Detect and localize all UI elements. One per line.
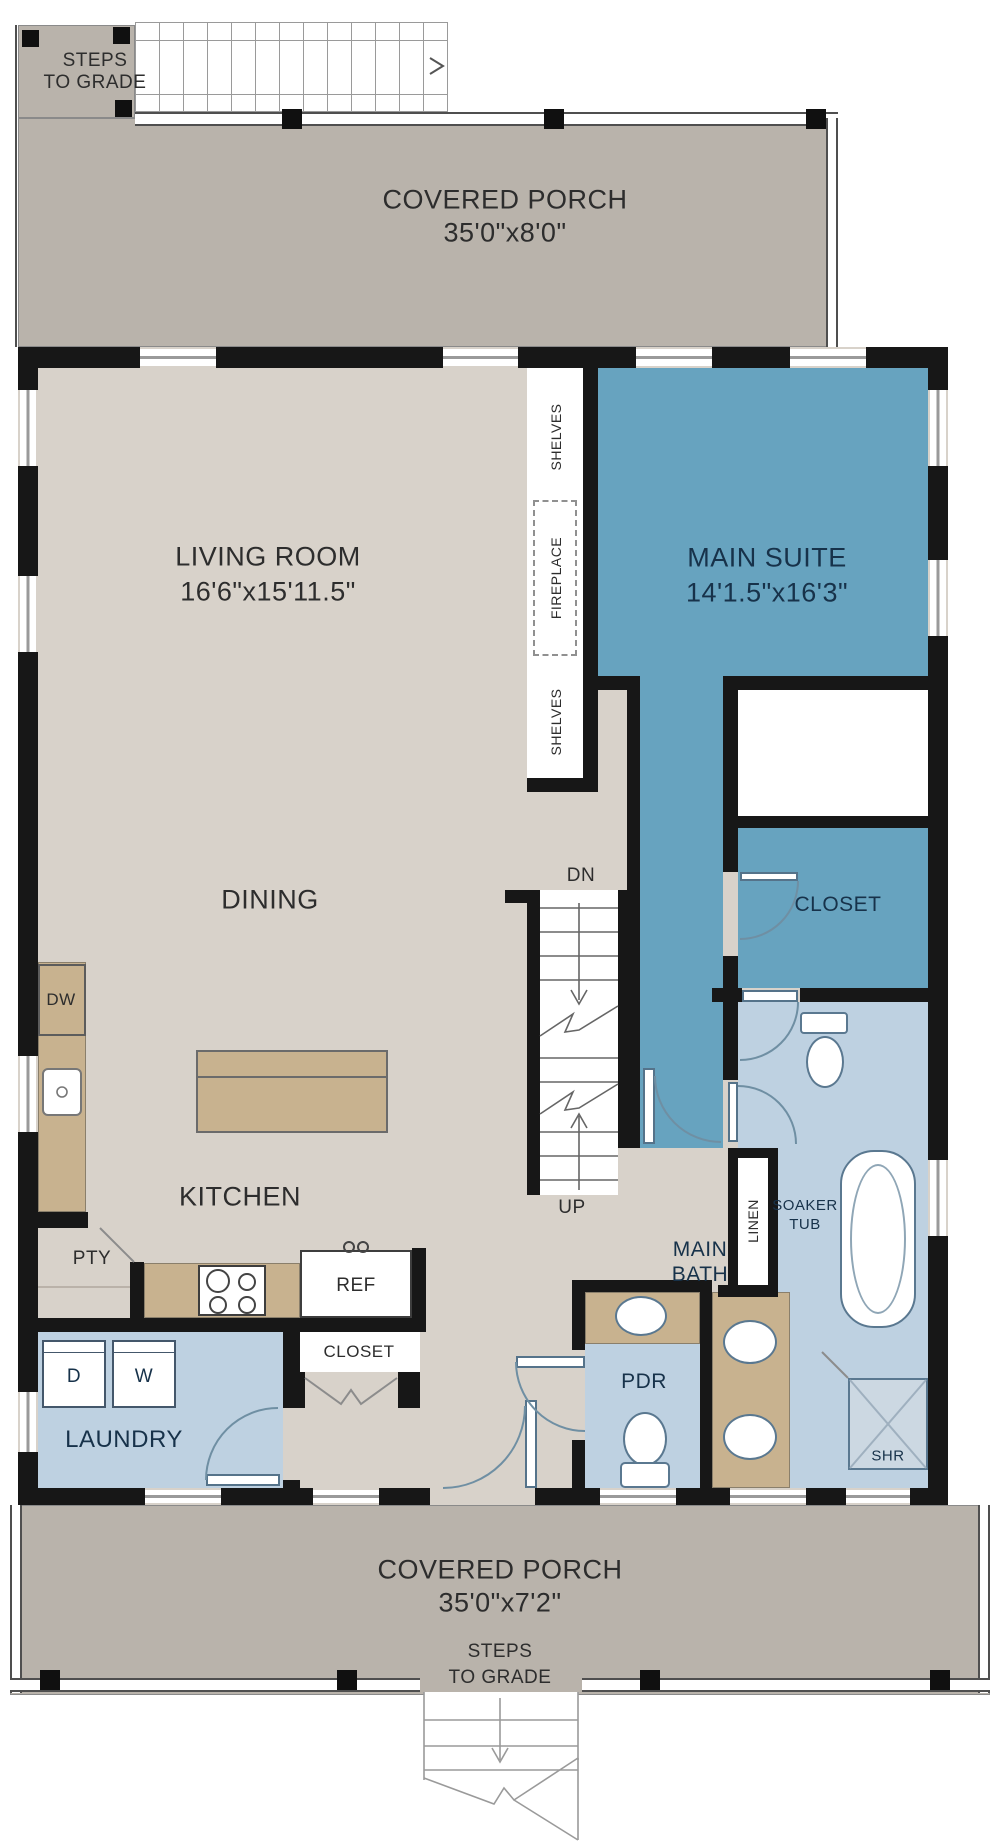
toilet-bowl-pdr: [623, 1412, 667, 1466]
suite-closet-label: CLOSET: [794, 893, 881, 917]
toilet-tank-pdr: [620, 1462, 670, 1488]
range-stove: [198, 1265, 266, 1316]
shelves-top-label: SHELVES: [548, 403, 564, 470]
washer-label: W: [135, 1366, 153, 1388]
door-leaf-suite: [643, 1068, 655, 1144]
door-leaf-pdr: [516, 1356, 585, 1368]
wall-pdr-left: [572, 1440, 585, 1488]
main-suite-label: MAIN SUITE: [687, 543, 847, 574]
wall-kitchen-laundry: [18, 1318, 426, 1332]
window: [790, 349, 866, 366]
main-suite-room: [598, 368, 928, 676]
laundry-label: LAUNDRY: [65, 1426, 183, 1454]
window: [930, 390, 946, 466]
window: [443, 349, 518, 366]
steps-label-line2: TO GRADE: [44, 72, 147, 94]
window: [313, 1490, 379, 1503]
railing-right-top: [826, 118, 838, 347]
window: [20, 390, 36, 466]
kitchen-sink: [42, 1068, 82, 1116]
wall-laundry-right-stub: [283, 1480, 300, 1488]
main-bath-line2: BATH: [672, 1262, 728, 1287]
wall-stairs-stub: [505, 890, 540, 903]
wall-segment: [676, 1488, 730, 1505]
dining-label: DINING: [221, 885, 319, 916]
washer-line: [112, 1352, 176, 1353]
window: [140, 349, 216, 366]
porch-bottom-label: COVERED PORCH: [377, 1555, 622, 1586]
wall-closet-jamb: [283, 1372, 305, 1408]
wall-segment: [18, 1132, 38, 1392]
wall-segment: [18, 347, 38, 390]
window: [145, 1490, 221, 1503]
railing-top: [135, 112, 838, 126]
porch-post: [40, 1670, 60, 1690]
door-leaf-bath-entry: [728, 1082, 738, 1142]
toilet-bowl-bath: [806, 1036, 844, 1088]
wall-segment: [18, 1452, 38, 1505]
wall-segment: [518, 347, 636, 368]
window: [636, 349, 712, 366]
living-room-dims: 16'6"x15'11.5": [180, 577, 356, 608]
railing-bottom-left: [10, 1678, 420, 1692]
wall-pdr-left: [572, 1292, 585, 1350]
window: [730, 1490, 806, 1503]
wall-closet-bottom: [800, 988, 928, 1002]
porch-post: [930, 1670, 950, 1690]
wall-segment: [221, 1488, 313, 1505]
steps-bottom-line2: TO GRADE: [449, 1667, 552, 1689]
hall-closet-label: CLOSET: [323, 1342, 394, 1362]
porch-post: [544, 109, 564, 129]
wall-ref-right: [412, 1248, 426, 1332]
dryer-label: D: [67, 1366, 81, 1388]
wall-segment: [216, 347, 443, 368]
window: [20, 1392, 36, 1452]
porch-post: [282, 109, 302, 129]
living-room-label: LIVING ROOM: [175, 542, 361, 573]
exterior-stairs-top: [135, 22, 448, 112]
main-bath-label: MAIN BATH: [672, 1237, 728, 1287]
steps-bottom-line1: STEPS: [468, 1641, 533, 1663]
wall-segment: [928, 466, 948, 560]
window: [600, 1490, 676, 1503]
steps-to-grade-top-label: STEPS TO GRADE: [44, 50, 147, 94]
main-suite-dims: 14'1.5"x16'3": [686, 578, 848, 609]
door-leaf-closet-bath: [742, 990, 798, 1002]
window: [20, 1056, 36, 1132]
porch-post: [337, 1670, 357, 1690]
soaker-tub-label: SOAKER TUB: [772, 1196, 838, 1234]
stair-rail-line: [135, 94, 448, 95]
stairs-up-label: UP: [558, 1197, 585, 1219]
covered-porch-top: [18, 118, 838, 347]
wall-corridor-right: [723, 956, 738, 1080]
door-leaf-closet: [740, 872, 798, 881]
soaker-label-line2: TUB: [772, 1215, 838, 1234]
toilet-tank-bath: [800, 1012, 848, 1034]
wall-pantry-stub: [130, 1262, 144, 1318]
wall-counter-stub: [38, 1212, 88, 1228]
wall-corridor-right: [723, 690, 738, 872]
main-bath-line1: MAIN: [672, 1237, 728, 1262]
dishwasher-label: DW: [46, 990, 75, 1010]
porch-top-dims: 35'0"x8'0": [443, 218, 566, 249]
island-counter-line: [196, 1076, 388, 1078]
porch-post: [806, 109, 826, 129]
wall-shelves-right: [583, 347, 598, 792]
stair-rail-line: [135, 40, 448, 41]
wall-closet-jamb: [398, 1372, 420, 1408]
wall-segment: [712, 347, 790, 368]
bath-sink-2: [723, 1414, 777, 1460]
linen-label: LINEN: [745, 1199, 761, 1243]
porch-bottom-dims: 35'0"x7'2": [438, 1588, 561, 1619]
floor-plan: STEPS TO GRADE COVERED PORCH 35'0"x8'0": [0, 0, 1000, 1844]
wall-closet-top: [738, 816, 928, 828]
wall-segment: [18, 466, 38, 576]
pdr-label: PDR: [621, 1370, 667, 1394]
fireplace-label: FIREPLACE: [548, 537, 564, 619]
wall-segment: [18, 652, 38, 1056]
wall-pdr-right: [700, 1292, 712, 1488]
wall-closet-bottom: [712, 988, 742, 1002]
window: [20, 576, 36, 652]
railing-left-bottom: [10, 1505, 22, 1693]
pantry-label: PTY: [73, 1248, 111, 1270]
steps-label-line1: STEPS: [44, 50, 147, 72]
stair-shaft: [540, 890, 618, 1195]
soaker-tub-inner: [850, 1164, 906, 1314]
wall-segment: [535, 1488, 600, 1505]
fridge-label: REF: [336, 1275, 376, 1297]
kitchen-label: KITCHEN: [179, 1182, 301, 1213]
window: [930, 560, 946, 636]
soaker-label-line1: SOAKER: [772, 1196, 838, 1215]
wall-suite-bottom-left: [583, 676, 640, 690]
pdr-sink: [615, 1296, 667, 1336]
suite-closet-gap: [738, 690, 928, 816]
porch-post: [113, 27, 130, 44]
kitchen-island: [196, 1050, 388, 1133]
porch-top-label: COVERED PORCH: [382, 185, 627, 216]
shower-label: SHR: [871, 1448, 904, 1465]
door-leaf-laundry: [206, 1474, 280, 1486]
porch-post: [640, 1670, 660, 1690]
bath-sink-1: [723, 1320, 777, 1364]
wall-segment: [806, 1488, 846, 1505]
dryer-line: [42, 1352, 106, 1353]
wall-segment: [928, 347, 948, 390]
wall-segment: [379, 1488, 430, 1505]
wall-segment: [928, 1236, 948, 1505]
wall-suite-bottom-right: [723, 676, 928, 690]
wall-segment: [928, 636, 948, 1160]
door-leaf-back: [525, 1400, 537, 1488]
window: [930, 1160, 946, 1236]
railing-right-bottom: [978, 1505, 990, 1693]
stairs-dn-label: DN: [567, 865, 595, 887]
wall-linen-left: [728, 1158, 738, 1285]
porch-post: [115, 100, 132, 117]
exterior-stairs-bottom: [424, 1692, 578, 1780]
window: [846, 1490, 910, 1503]
wall-stairs-right: [618, 890, 633, 1148]
porch-post: [22, 30, 39, 47]
wall-stairs-left: [527, 890, 540, 1195]
wall-shelves-cap: [527, 778, 598, 792]
shelves-bottom-label: SHELVES: [548, 688, 564, 755]
